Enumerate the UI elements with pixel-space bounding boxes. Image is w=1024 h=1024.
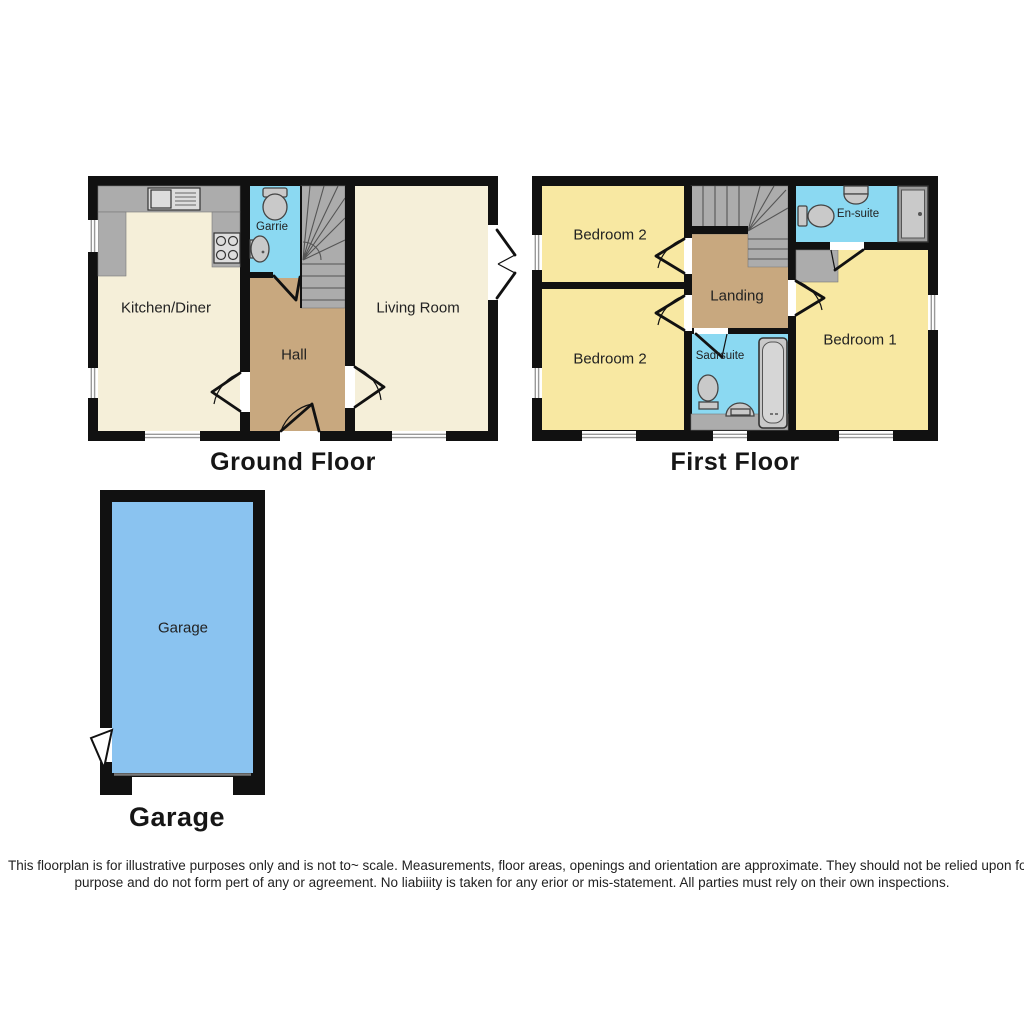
basin [250,236,269,262]
window [928,295,938,330]
disclaimer-line1: This floorplan is for illustrative purpo… [0,857,1024,874]
ensuite-label: En-suite [837,208,879,220]
bedrooms-divider-wall [542,282,684,289]
french-doors [488,225,515,300]
ground-floor-plan: Kitchen/Diner Hall Living Room Garrie [88,176,498,441]
toilet [698,375,718,409]
shower [898,186,928,242]
bedroom2-bottom-label: Bedroom 2 [573,351,646,368]
first-floor-plan: Bedroom 2 Bedroom 2 Landing En-suite Sad… [532,176,938,441]
bedroom2-top-label: Bedroom 2 [573,227,646,244]
garage-room [112,502,253,773]
toilet [263,188,287,220]
kitchen-label: Kitchen/Diner [121,300,211,317]
window [88,368,98,398]
bathroom-label: Sadrsuite [696,350,745,362]
disclaimer: This floorplan is for illustrative purpo… [0,857,1024,891]
garage-drawing [100,490,265,795]
cloakroom-wall [250,272,273,278]
garage-plan: Garage [100,490,265,795]
window [532,368,542,398]
first-floor-title: First Floor [532,448,938,477]
window [582,431,636,441]
disclaimer-line2: purpose and do not form pert of any or a… [0,874,1024,891]
window [392,431,446,441]
window [839,431,893,441]
bath [759,338,787,428]
sink-unit [148,188,200,210]
garage-title: Garage [97,802,257,833]
basin [844,186,868,204]
window [532,235,542,270]
garage-door-opening [132,777,233,795]
stairs [301,186,345,308]
window [88,220,98,252]
bedroom1-label: Bedroom 1 [823,332,896,349]
floorplan-canvas: Kitchen/Diner Hall Living Room Garrie Gr… [0,0,1024,1024]
garage-room-label: Garage [158,620,208,637]
hall-label: Hall [281,347,307,364]
ground-floor-title: Ground Floor [88,448,498,477]
stairs-wall [691,226,748,234]
window [713,431,747,441]
landing-label: Landing [710,288,763,305]
toilet [798,205,834,227]
living-room-label: Living Room [376,300,459,317]
hob [214,233,240,263]
side-door [91,728,112,768]
cloakroom-label: Garrie [256,221,288,233]
window [145,431,200,441]
